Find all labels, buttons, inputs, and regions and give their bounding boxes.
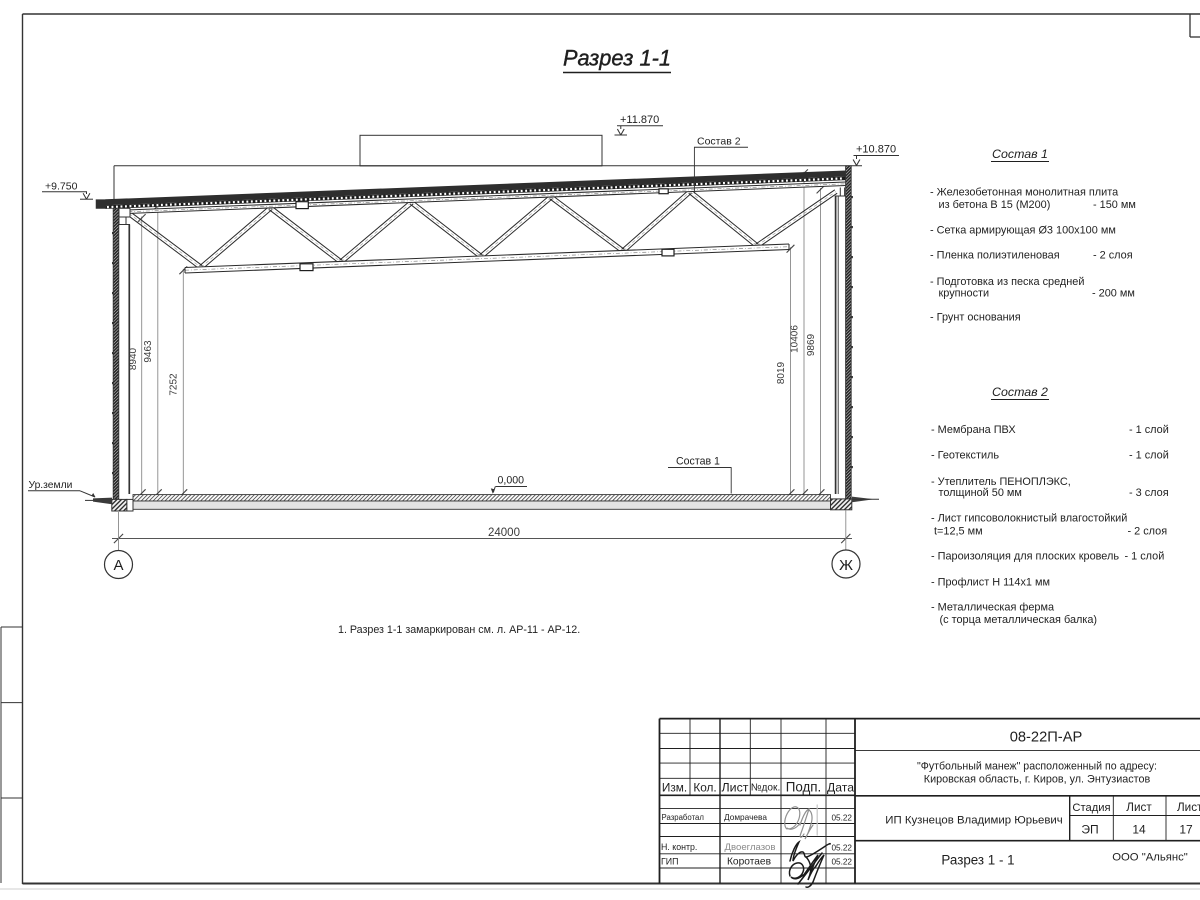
svg-text:0,000: 0,000 bbox=[498, 475, 525, 487]
svg-text:- 1 слой: - 1 слой bbox=[1125, 551, 1165, 563]
svg-text:- Сетка армирующая Ø3 100х100: - Сетка армирующая Ø3 100х100 мм bbox=[930, 225, 1116, 237]
svg-text:- Профлист Н 114х1 мм: - Профлист Н 114х1 мм bbox=[931, 577, 1050, 589]
svg-text:- 2 слоя: - 2 слоя bbox=[1093, 250, 1133, 262]
svg-text:"Футбольный манеж" расположенн: "Футбольный манеж" расположенный по адре… bbox=[917, 761, 1157, 773]
svg-text:- 3 слоя: - 3 слоя bbox=[1129, 487, 1169, 499]
svg-text:24000: 24000 bbox=[488, 527, 520, 539]
svg-text:- Пленка полиэтиленовая: - Пленка полиэтиленовая bbox=[930, 250, 1060, 262]
svg-text:толщиной 50 мм: толщиной 50 мм bbox=[939, 487, 1022, 499]
svg-text:7252: 7252 bbox=[168, 373, 179, 396]
svg-text:+9.750: +9.750 bbox=[45, 181, 78, 193]
svg-text:- Железобетонная монолитная п: - Железобетонная монолитная плита bbox=[930, 187, 1119, 199]
svg-text:Разработал: Разработал bbox=[662, 813, 705, 822]
svg-text:Кировская область, г. Киров, у: Кировская область, г. Киров, ул. Энтузиа… bbox=[924, 774, 1151, 786]
svg-text:t=12,5 мм: t=12,5 мм bbox=[934, 526, 983, 538]
svg-text:Подп.: Подп. bbox=[786, 780, 822, 795]
svg-text:ООО "Альянс": ООО "Альянс" bbox=[1112, 852, 1188, 864]
svg-text:ГИП: ГИП bbox=[661, 857, 678, 867]
svg-text:- Подготовка из песка средней: - Подготовка из песка средней bbox=[930, 276, 1084, 288]
svg-text:- Пароизоляция для плоских кро: - Пароизоляция для плоских кровель bbox=[931, 551, 1119, 563]
svg-text:- 1 слой: - 1 слой bbox=[1129, 424, 1169, 436]
svg-text:- Лист гипсоволокнистый влагос: - Лист гипсоволокнистый влагостойкий bbox=[931, 513, 1127, 525]
svg-text:+11.870: +11.870 bbox=[620, 114, 659, 126]
svg-text:+10.870: +10.870 bbox=[856, 144, 896, 156]
svg-text:Ур.земли: Ур.земли bbox=[29, 480, 73, 491]
svg-text:Состав 1: Состав 1 bbox=[676, 456, 720, 468]
svg-text:ЭП: ЭП bbox=[1081, 823, 1098, 837]
svg-text:- Металлическая ферма: - Металлическая ферма bbox=[931, 602, 1055, 614]
svg-text:10406: 10406 bbox=[790, 325, 801, 353]
svg-text:- Мембрана ПВХ: - Мембрана ПВХ bbox=[931, 424, 1016, 436]
svg-text:№док.: №док. bbox=[751, 783, 781, 794]
svg-text:ИП Кузнецов Владимир Юрьевич: ИП Кузнецов Владимир Юрьевич bbox=[885, 815, 1062, 827]
svg-text:9869: 9869 bbox=[806, 333, 817, 356]
svg-text:Стадия: Стадия bbox=[1072, 802, 1110, 814]
svg-text:А: А bbox=[113, 557, 123, 574]
svg-text:Лист: Лист bbox=[1126, 801, 1152, 814]
svg-text:8940: 8940 bbox=[128, 347, 139, 370]
svg-text:- 1 слой: - 1 слой bbox=[1129, 450, 1169, 462]
svg-text:08-22П-АР: 08-22П-АР bbox=[1010, 730, 1083, 746]
svg-text:17: 17 bbox=[1179, 823, 1193, 837]
svg-text:Разрез 1 - 1: Разрез 1 - 1 bbox=[941, 853, 1014, 868]
svg-text:- 2 слоя: - 2 слоя bbox=[1128, 526, 1168, 538]
svg-text:Домрачева: Домрачева bbox=[724, 812, 767, 822]
svg-text:9463: 9463 bbox=[143, 340, 154, 363]
svg-text:Коротаев: Коротаев bbox=[727, 857, 771, 868]
svg-text:Разрез 1-1: Разрез 1-1 bbox=[563, 46, 671, 71]
svg-text:05.22: 05.22 bbox=[832, 843, 853, 852]
svg-text:05.22: 05.22 bbox=[832, 814, 853, 823]
svg-text:8019: 8019 bbox=[776, 361, 787, 384]
svg-text:05.22: 05.22 bbox=[832, 858, 853, 867]
svg-text:Лист: Лист bbox=[722, 781, 749, 795]
svg-text:- Грунт основания: - Грунт основания bbox=[930, 312, 1021, 324]
svg-text:14: 14 bbox=[1132, 823, 1146, 837]
svg-text:Дата: Дата bbox=[827, 781, 854, 795]
svg-text:из бетона В 15 (М200): из бетона В 15 (М200) bbox=[939, 199, 1051, 211]
svg-text:Изм.: Изм. bbox=[662, 781, 687, 795]
svg-text:Н. контр.: Н. контр. bbox=[661, 842, 697, 852]
svg-text:1. Разрез 1-1 замаркирован см.: 1. Разрез 1-1 замаркирован см. л. АР-11 … bbox=[338, 624, 580, 636]
svg-text:Состав 1: Состав 1 bbox=[992, 147, 1048, 161]
svg-text:- 150 мм: - 150 мм bbox=[1093, 199, 1136, 211]
svg-text:(с торца металлическая балка): (с торца металлическая балка) bbox=[940, 614, 1098, 626]
svg-text:крупности: крупности bbox=[939, 288, 990, 300]
svg-text:Кол.: Кол. bbox=[693, 781, 716, 795]
svg-text:Состав 2: Состав 2 bbox=[697, 136, 741, 148]
svg-text:- Геотекстиль: - Геотекстиль bbox=[931, 450, 999, 462]
svg-text:Состав 2: Состав 2 bbox=[992, 385, 1048, 399]
svg-text:- 200 мм: - 200 мм bbox=[1092, 288, 1135, 300]
svg-text:Листов: Листов bbox=[1177, 801, 1200, 814]
svg-text:Двоеглазов: Двоеглазов bbox=[725, 842, 776, 853]
svg-text:Ж: Ж bbox=[839, 557, 853, 574]
